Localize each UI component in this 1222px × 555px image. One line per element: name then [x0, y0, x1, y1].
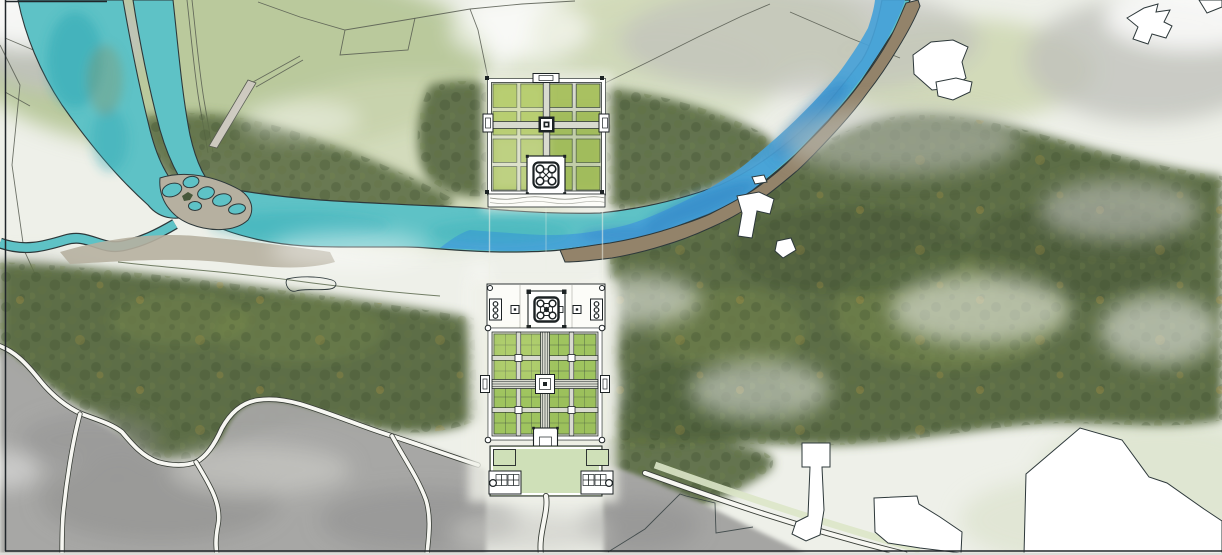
wall-corner-marker [599, 437, 605, 443]
gate-corner-dot [532, 427, 535, 430]
corner-tower [536, 177, 544, 185]
wall-corner-dot [600, 190, 604, 194]
path-node [568, 355, 575, 362]
wall-corner-dot [485, 76, 489, 80]
minaret [549, 300, 556, 307]
platform-corner-dot [526, 155, 529, 158]
plinth-corner [562, 290, 567, 295]
plinth-corner [527, 290, 532, 295]
charbagh-garden [481, 325, 610, 458]
tomb-dome-circle [606, 480, 613, 487]
mist [890, 275, 1070, 345]
east-tomb-structure [581, 471, 613, 494]
corner-court [494, 450, 516, 466]
west-garden-gate [481, 376, 490, 393]
west-gate [483, 114, 493, 132]
terrace-pavilion-dot [576, 308, 578, 310]
central-pool [536, 375, 555, 394]
site-plan-canvas [0, 0, 1222, 555]
dome [544, 307, 549, 312]
gate-body [481, 376, 490, 393]
wall-corner-marker [599, 325, 605, 331]
corner-tower [536, 165, 544, 173]
building-polygon [752, 175, 767, 184]
east-gate [599, 114, 609, 132]
terrace-strip [488, 194, 605, 207]
terrace-corner-marker [600, 286, 605, 291]
mist [240, 100, 360, 140]
mist [690, 360, 830, 420]
minaret [537, 312, 544, 319]
water-shade [92, 108, 128, 172]
town-shade [20, 414, 160, 466]
north-gate [533, 74, 559, 83]
mist [1040, 180, 1200, 240]
central-pavilion [539, 117, 555, 133]
wall-corner-marker [485, 437, 491, 443]
path-node [515, 407, 522, 414]
platform-corner-dot [563, 155, 566, 158]
water-tint [87, 45, 123, 115]
wall-corner-marker [485, 325, 491, 331]
upper-garden [482, 72, 612, 212]
gate-body [533, 74, 559, 83]
minaret [549, 312, 556, 319]
terrace-pavilion-dot [514, 308, 516, 310]
terrace-corner-marker [488, 286, 493, 291]
town-highlight [170, 445, 350, 495]
town-highlight [450, 512, 610, 552]
gate-corner-dot [556, 427, 559, 430]
gate-body [601, 376, 610, 393]
mist [1100, 295, 1220, 365]
river-terrace [487, 284, 605, 330]
minaret [537, 300, 544, 307]
mist [270, 230, 430, 270]
corner-tower [548, 165, 556, 173]
west-tomb-structure [489, 471, 521, 494]
mosque-building [490, 299, 502, 320]
wall-corner-dot [485, 190, 489, 194]
water-shade [430, 220, 570, 244]
east-garden-gate [601, 376, 610, 393]
braid-pool [189, 202, 202, 211]
path-node [568, 407, 575, 414]
wall-corner-dot [600, 76, 604, 80]
upper-terrace [488, 194, 605, 207]
site-plan-svg [0, 0, 1222, 555]
gate-body [483, 114, 493, 132]
mausoleum [527, 290, 567, 330]
corner-court [587, 450, 609, 466]
guesthouse-building [591, 299, 603, 320]
path-node [515, 355, 522, 362]
tomb-dome-circle [490, 480, 497, 487]
pool-center [543, 382, 547, 386]
riverfront-pavilion [526, 155, 566, 195]
corner-tower [548, 177, 556, 185]
mist [780, 105, 1020, 175]
pavilion-center [545, 123, 548, 126]
